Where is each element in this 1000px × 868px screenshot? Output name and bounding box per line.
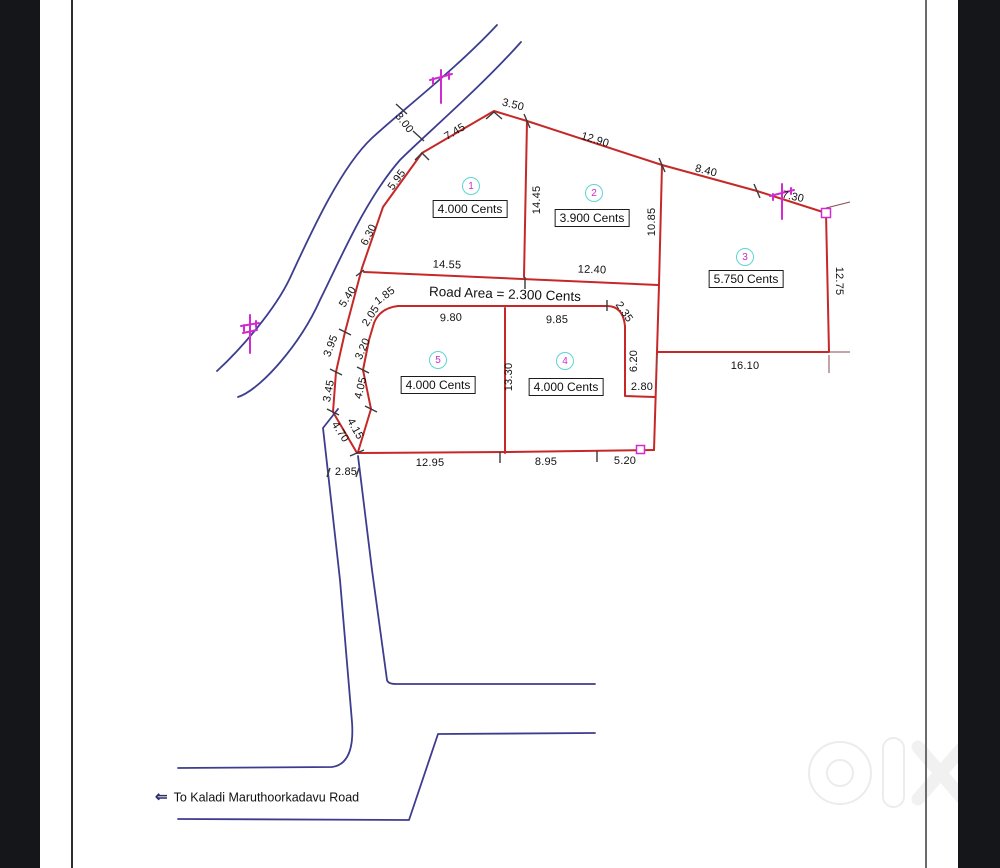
dimension-label: 9.80 xyxy=(440,312,463,325)
electric-post-icon xyxy=(430,70,452,103)
dimension-label: 10.85 xyxy=(646,208,658,237)
dimension-label: 12.75 xyxy=(833,267,845,296)
destination-label: To Kaladi Maruthoorkadavu Road xyxy=(174,790,360,804)
dimension-label: 12.40 xyxy=(578,264,607,277)
dimension-label: 13.30 xyxy=(503,363,515,392)
plot-number-badge: 5 xyxy=(429,351,447,369)
plot-area-label: 5.750 Cents xyxy=(709,270,784,288)
photo-black-border xyxy=(0,0,40,868)
plot-area-label: 4.000 Cents xyxy=(401,376,476,394)
dimension-label: 8.95 xyxy=(535,456,557,468)
plot-number-badge: 2 xyxy=(585,184,603,202)
survey-marker-icon xyxy=(637,446,645,454)
dimension-label: 16.10 xyxy=(731,360,760,372)
electric-post-icon xyxy=(241,315,259,353)
plot-area-label: 4.000 Cents xyxy=(433,200,508,218)
road-lines xyxy=(178,25,595,820)
dimension-label: 5.20 xyxy=(614,455,636,467)
photo-black-border xyxy=(958,0,1000,868)
dimension-label: 6.20 xyxy=(628,350,640,372)
sheet-edge-line xyxy=(925,0,927,868)
dimension-label: 9.85 xyxy=(546,314,568,326)
dimension-label: 14.55 xyxy=(433,259,462,272)
left-arrow-icon: ⇐ xyxy=(155,790,168,805)
destination-note: ⇐ To Kaladi Maruthoorkadavu Road xyxy=(155,790,359,805)
dimension-label: 12.95 xyxy=(416,457,445,469)
plot-number-badge: 3 xyxy=(736,248,754,266)
dimension-label: 2.85 xyxy=(335,466,357,478)
sheet-edge-line xyxy=(71,0,73,868)
survey-marker-icon xyxy=(822,209,831,218)
plot-area-label: 4.000 Cents xyxy=(529,378,604,396)
plot-number-badge: 1 xyxy=(462,177,480,195)
dimension-ticks xyxy=(327,104,850,477)
dimension-label: 14.45 xyxy=(531,186,543,215)
survey-linework xyxy=(0,0,1000,868)
dimension-label: 2.80 xyxy=(631,381,653,393)
plot-number-badge: 4 xyxy=(556,352,574,370)
survey-plan-photo: 3.00 7.45 3.50 12.90 8.40 7.30 5.95 6.30… xyxy=(0,0,1000,868)
plot-area-label: 3.900 Cents xyxy=(555,209,630,227)
